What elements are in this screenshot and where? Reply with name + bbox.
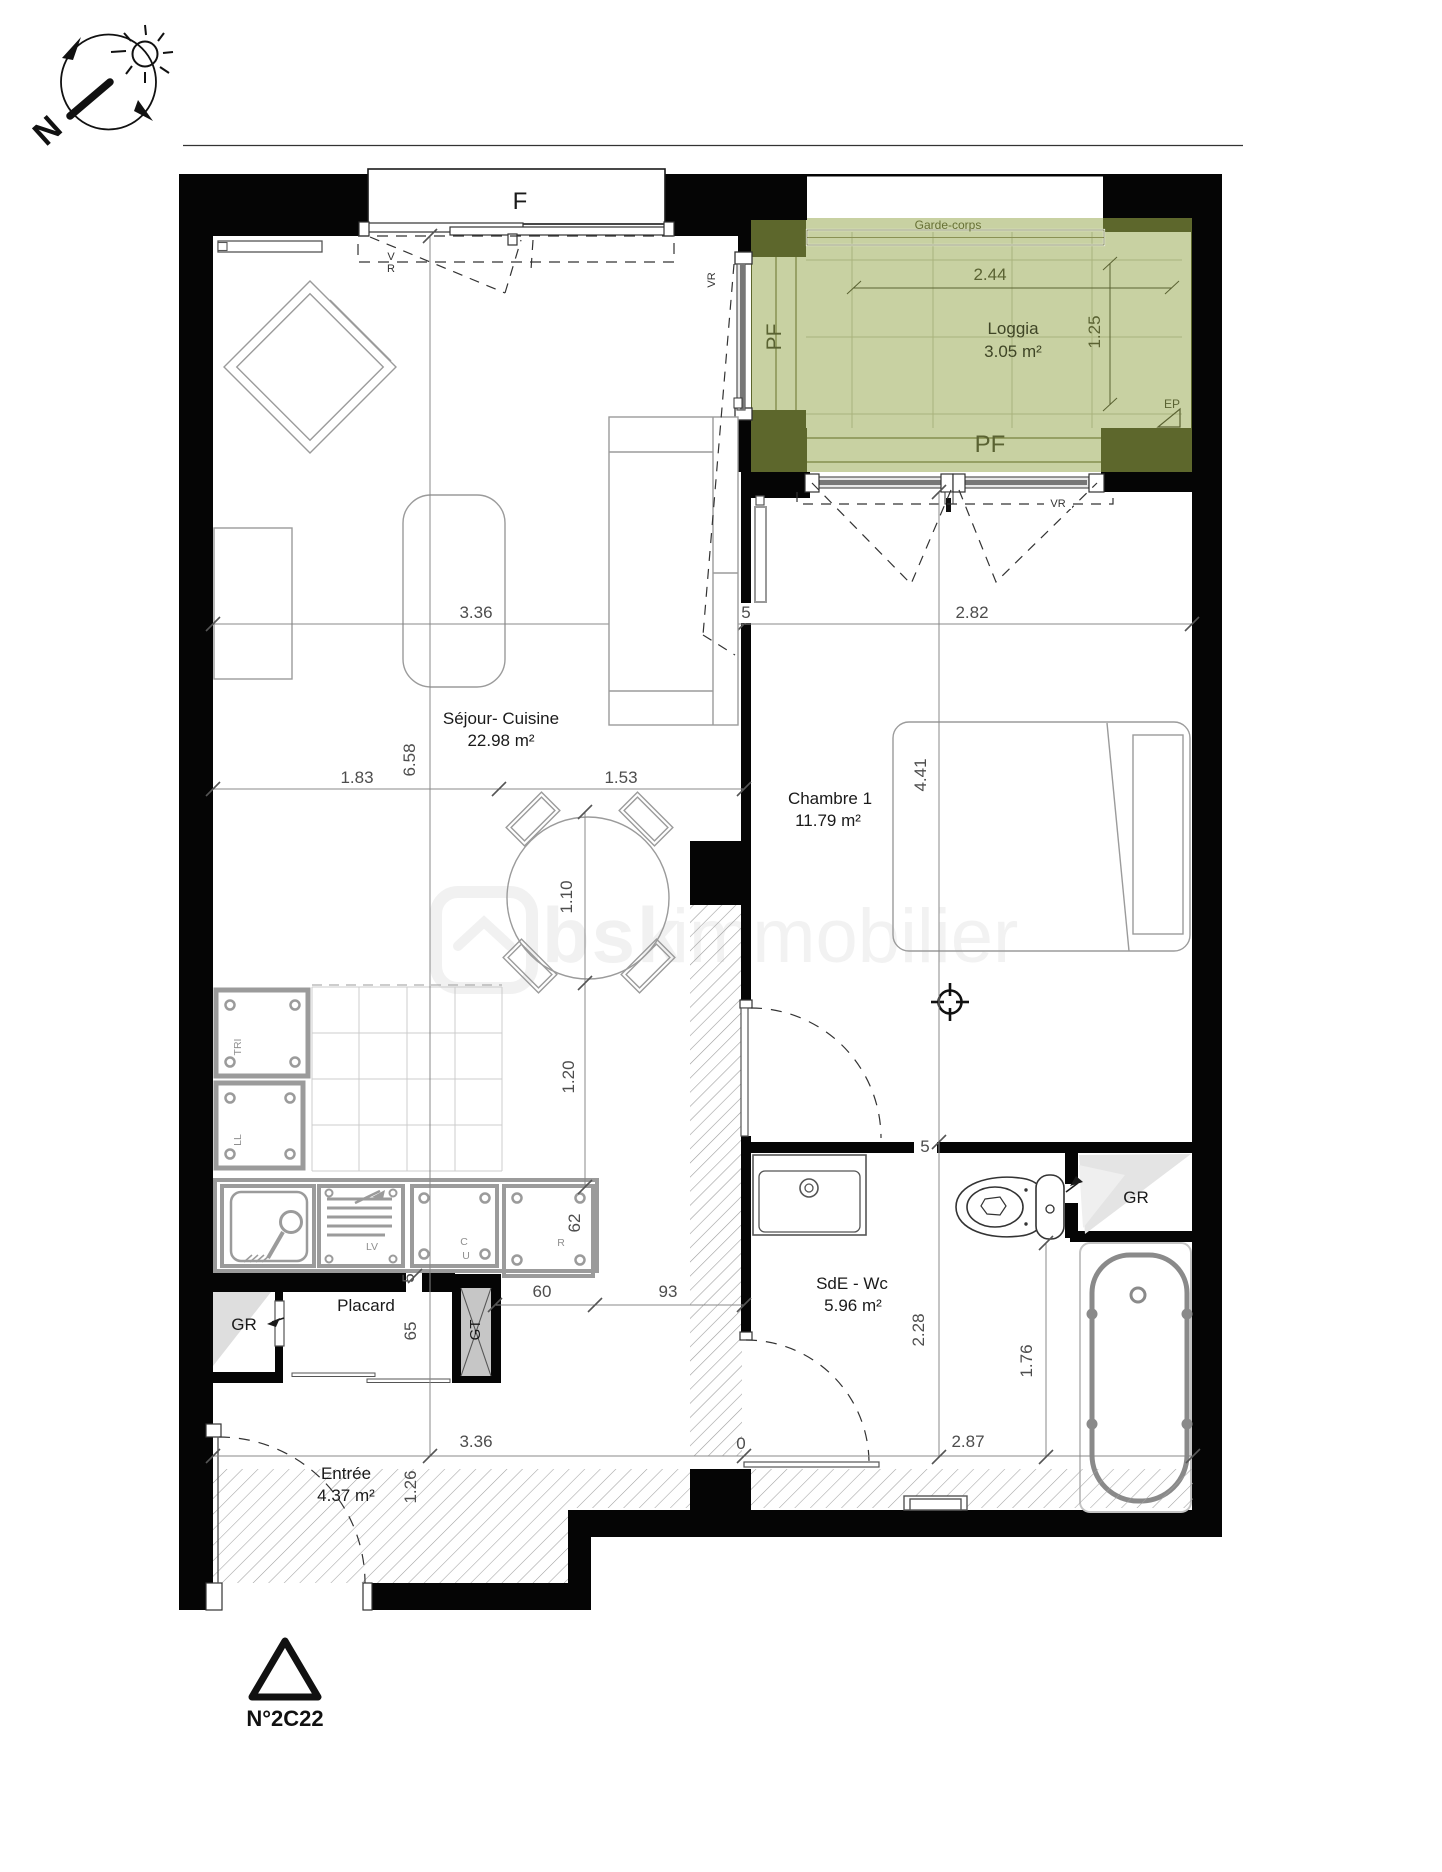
svg-text:93: 93: [659, 1282, 678, 1301]
svg-text:Loggia: Loggia: [987, 319, 1039, 338]
svg-text:1.26: 1.26: [401, 1470, 420, 1503]
svg-text:VR: VR: [706, 272, 718, 287]
svg-text:Placard: Placard: [337, 1296, 395, 1315]
svg-text:Chambre 1: Chambre 1: [788, 789, 872, 808]
svg-text:5: 5: [741, 603, 750, 622]
svg-text:TRI: TRI: [232, 1039, 244, 1056]
svg-text:R: R: [387, 263, 395, 275]
svg-text:62: 62: [565, 1214, 584, 1233]
svg-text:LL: LL: [232, 1134, 244, 1146]
svg-text:3.36: 3.36: [459, 1432, 492, 1451]
svg-text:LV: LV: [366, 1241, 378, 1253]
svg-text:R: R: [557, 1237, 565, 1249]
svg-text:4.37 m²: 4.37 m²: [317, 1486, 375, 1505]
svg-text:GR: GR: [231, 1315, 257, 1334]
svg-text:3.36: 3.36: [459, 603, 492, 622]
svg-text:PF: PF: [975, 431, 1006, 458]
svg-text:U: U: [462, 1250, 470, 1262]
svg-text:GR: GR: [1123, 1188, 1149, 1207]
svg-text:22.98 m²: 22.98 m²: [467, 731, 534, 750]
svg-text:5.96 m²: 5.96 m²: [824, 1296, 882, 1315]
svg-text:1.76: 1.76: [1017, 1344, 1036, 1377]
svg-text:EP: EP: [1164, 397, 1180, 411]
svg-text:65: 65: [401, 1322, 420, 1341]
svg-text:1.25: 1.25: [1085, 315, 1104, 348]
svg-text:0: 0: [736, 1434, 745, 1453]
svg-text:3.05 m²: 3.05 m²: [984, 342, 1042, 361]
svg-text:2.44: 2.44: [973, 265, 1006, 284]
svg-text:SdE - Wc: SdE - Wc: [816, 1274, 888, 1293]
svg-text:2.87: 2.87: [951, 1432, 984, 1451]
svg-text:PF: PF: [763, 324, 786, 351]
svg-text:60: 60: [533, 1282, 552, 1301]
svg-text:Séjour- Cuisine: Séjour- Cuisine: [443, 709, 559, 728]
svg-text:2.82: 2.82: [955, 603, 988, 622]
svg-text:1.83: 1.83: [340, 768, 373, 787]
svg-text:VR: VR: [1050, 498, 1065, 510]
svg-text:11.79 m²: 11.79 m²: [795, 811, 861, 830]
svg-text:5: 5: [399, 1273, 418, 1282]
svg-text:GT: GT: [467, 1320, 484, 1341]
svg-text:N°2C22: N°2C22: [246, 1706, 323, 1731]
svg-text:5: 5: [920, 1137, 929, 1156]
svg-text:V: V: [387, 251, 395, 263]
svg-text:4.41: 4.41: [911, 758, 930, 791]
svg-text:2.28: 2.28: [909, 1313, 928, 1346]
svg-text:Garde-corps: Garde-corps: [915, 218, 982, 232]
svg-text:F: F: [513, 188, 528, 215]
svg-text:C: C: [460, 1236, 468, 1248]
svg-text:6.58: 6.58: [400, 743, 419, 776]
svg-text:1.20: 1.20: [559, 1060, 578, 1093]
svg-text:1.53: 1.53: [604, 768, 637, 787]
svg-text:1.10: 1.10: [557, 880, 576, 913]
svg-text:Entrée: Entrée: [321, 1464, 371, 1483]
